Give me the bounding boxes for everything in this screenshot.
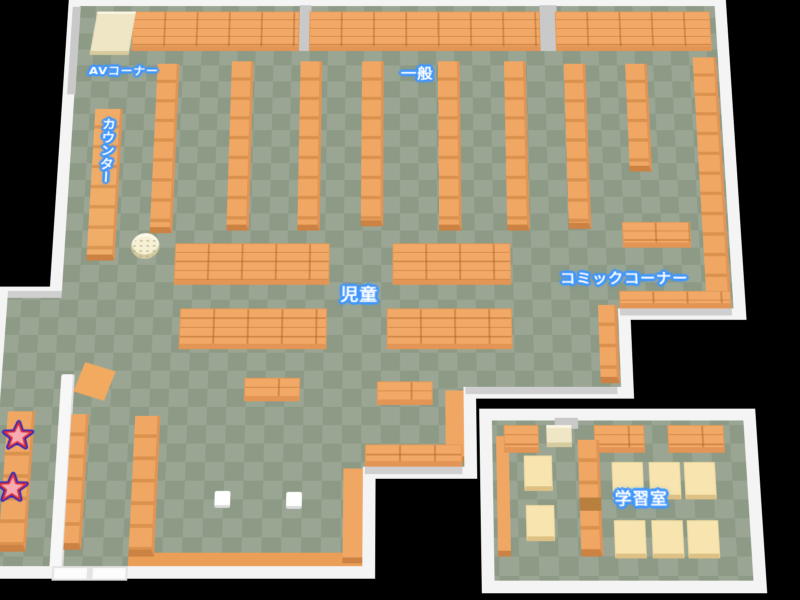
- bookshelf: [179, 308, 328, 349]
- study-table: [684, 462, 717, 499]
- av-shelf: [90, 12, 136, 55]
- wall-shade: [8, 291, 62, 298]
- av-shelf: [546, 425, 572, 447]
- baseboard: [128, 553, 362, 566]
- study-table: [614, 520, 647, 558]
- study-table: [651, 520, 684, 558]
- bookshelf: [297, 61, 322, 230]
- star-marker[interactable]: [0, 469, 33, 507]
- bookshelf: [555, 12, 712, 51]
- divider-gap: [580, 498, 602, 511]
- entrance-door[interactable]: [52, 566, 128, 581]
- bookshelf: [309, 12, 541, 51]
- study-table: [687, 520, 721, 558]
- wall-shade: [365, 467, 463, 474]
- bookshelf: [438, 61, 462, 230]
- bookshelf: [667, 425, 725, 453]
- label-av-corner: AVコーナー: [89, 62, 160, 77]
- bookshelf: [619, 291, 732, 309]
- study-table: [526, 505, 555, 541]
- bookshelf: [131, 12, 300, 51]
- bookshelf: [392, 243, 511, 284]
- wall-shade: [465, 387, 617, 394]
- label-study-room: 学習室: [614, 485, 668, 509]
- bookshelf: [504, 61, 530, 230]
- label-counter: カウンター: [96, 118, 119, 184]
- label-children: 児童: [340, 282, 378, 306]
- label-general: 一般: [401, 62, 434, 82]
- study-table: [524, 455, 553, 490]
- bookshelf: [365, 444, 463, 466]
- star-marker[interactable]: [0, 418, 38, 455]
- wall-shade: [620, 308, 732, 315]
- bookshelf: [504, 425, 540, 453]
- bookshelf: [594, 425, 646, 453]
- map-plane: AVコーナー 一般 カウンター 児童 コミックコーナー 学習室: [0, 2, 800, 600]
- star-shape: [0, 474, 27, 499]
- chair: [214, 491, 230, 508]
- low-bench-shelf: [244, 378, 300, 402]
- bookshelf: [387, 308, 513, 349]
- bookshelf: [342, 469, 362, 564]
- bookshelf: [622, 222, 691, 248]
- label-comic-corner: コミックコーナー: [560, 267, 689, 288]
- bookshelf: [361, 61, 384, 226]
- library-floor-map: AVコーナー 一般 カウンター 児童 コミックコーナー 学習室: [0, 0, 800, 600]
- low-bench-shelf: [377, 381, 433, 405]
- chair: [286, 492, 302, 509]
- bookshelf: [496, 436, 511, 556]
- bookshelf: [174, 243, 330, 284]
- bookshelf: [598, 305, 620, 383]
